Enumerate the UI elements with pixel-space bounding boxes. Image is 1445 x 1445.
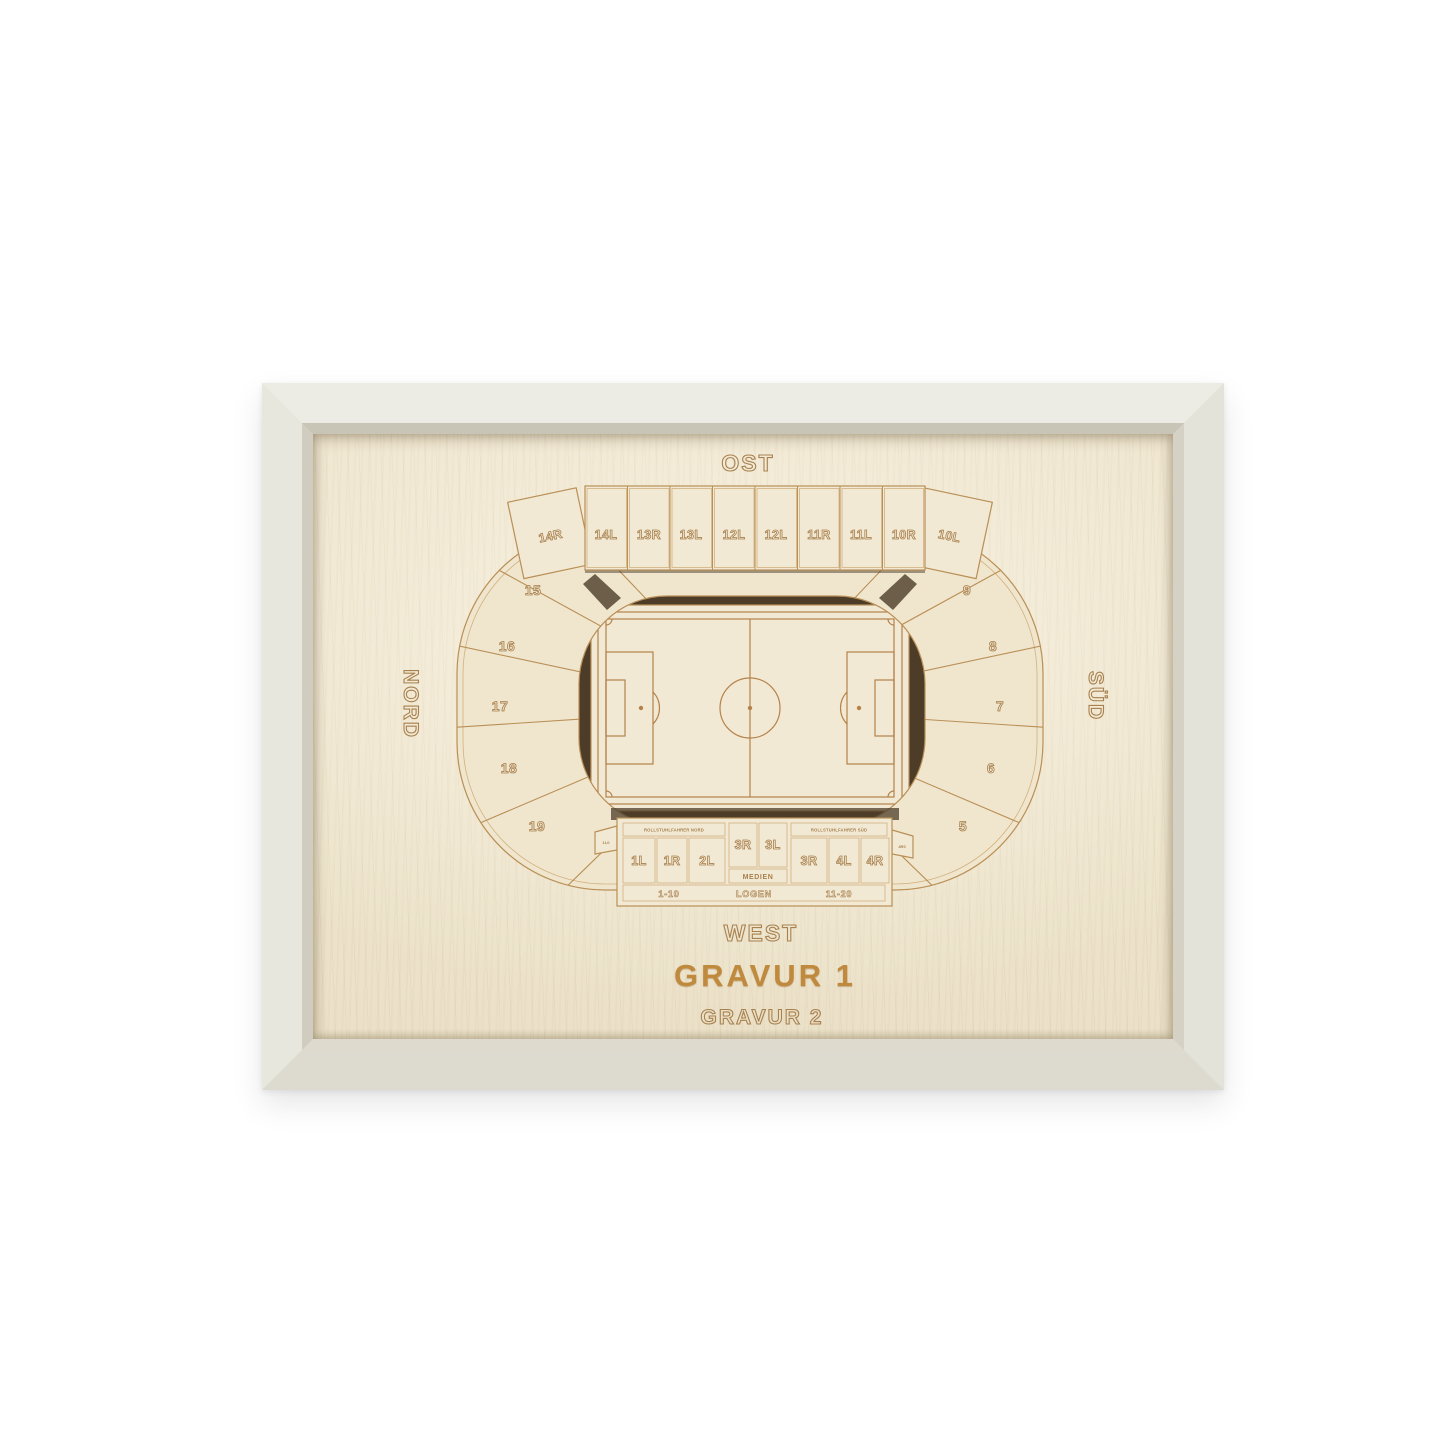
section-label-19: 19	[529, 818, 546, 834]
label-sued: SÜD	[1083, 671, 1107, 721]
logen-label: LOGEN	[736, 889, 772, 899]
west-stand: ROLLSTUHLFAHRER NORD ROLLSTUHLFAHRER SÜD…	[595, 808, 913, 906]
wood-board: OST NORD SÜD	[313, 434, 1173, 1039]
section-label-8: 8	[989, 638, 997, 654]
section-label-11r: 11R	[807, 528, 830, 542]
section-label-18: 18	[501, 760, 518, 776]
product-photo: OST NORD SÜD	[0, 0, 1445, 1445]
section-label-13r: 13R	[637, 528, 661, 542]
section-label-16: 16	[499, 638, 516, 654]
section-label-5: 5	[959, 818, 967, 834]
section-label-3l-mid: 3L	[765, 838, 780, 852]
label-ost: OST	[721, 450, 774, 477]
rows-label-right: 11-20	[826, 889, 853, 899]
section-label-15: 15	[525, 582, 542, 598]
engraving-line-2: GRAVUR 2	[701, 1006, 824, 1030]
wheelchair-label-south: ROLLSTUHLFAHRER SÜD	[811, 828, 867, 833]
section-label-10r: 10R	[892, 528, 916, 542]
section-label-12r: 12L	[723, 528, 746, 542]
east-stand: 14L 13R 13L 12L 12L 11R 11L 10R	[585, 486, 925, 573]
section-label-4r: 4R	[867, 854, 884, 868]
section-label-12l: 12L	[765, 528, 788, 542]
tab-label-left: 1L0	[603, 840, 611, 845]
media-label: MEDIEN	[743, 874, 774, 881]
stadium-map: 15 16 17 18 19 9 8 7 6 5 14R	[445, 478, 1055, 923]
section-label-6: 6	[987, 760, 995, 776]
wheelchair-label-north: ROLLSTUHLFAHRER NORD	[644, 828, 704, 833]
section-label-17: 17	[492, 698, 509, 714]
tab-label-right: 4R0	[898, 844, 906, 849]
engraving-line-1: GRAVUR 1	[674, 958, 856, 994]
frame-inner-lip: OST NORD SÜD	[302, 423, 1184, 1050]
section-label-7: 7	[996, 698, 1004, 714]
label-nord: NORD	[398, 669, 422, 739]
section-label-3r: 3R	[801, 854, 818, 868]
rows-label-left: 1-10	[658, 889, 679, 899]
section-label-1r: 1R	[664, 854, 681, 868]
section-label-14l: 14L	[595, 528, 618, 542]
section-label-11l: 11L	[850, 528, 872, 542]
section-label-13l: 13L	[680, 528, 703, 542]
section-label-1l: 1L	[631, 854, 646, 868]
label-west: WEST	[724, 920, 798, 947]
picture-frame: OST NORD SÜD	[262, 383, 1224, 1090]
section-label-4l: 4L	[836, 854, 851, 868]
section-label-3r-mid: 3R	[735, 838, 752, 852]
section-label-9: 9	[963, 582, 971, 598]
section-label-2l: 2L	[699, 854, 714, 868]
